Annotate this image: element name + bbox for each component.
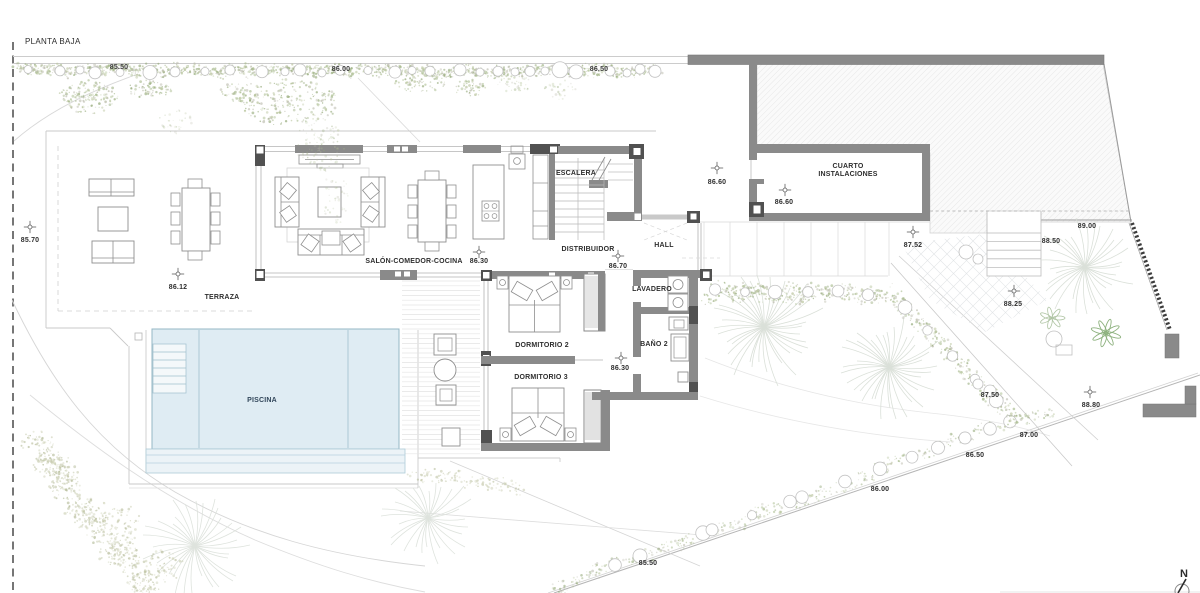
svg-text:88.25: 88.25	[1004, 301, 1023, 308]
svg-text:N: N	[1180, 568, 1188, 580]
svg-text:86.00: 86.00	[871, 486, 890, 493]
svg-text:86.70: 86.70	[609, 263, 628, 270]
svg-text:87.00: 87.00	[1020, 432, 1039, 439]
svg-text:86.00: 86.00	[332, 66, 351, 73]
svg-text:89.00: 89.00	[1078, 223, 1097, 230]
svg-text:87.50: 87.50	[981, 392, 1000, 399]
svg-text:DISTRIBUIDOR: DISTRIBUIDOR	[562, 246, 615, 253]
svg-text:PISCINA: PISCINA	[247, 397, 277, 404]
svg-text:86.12: 86.12	[169, 284, 188, 291]
svg-text:SALÓN-COMEDOR-COCINA: SALÓN-COMEDOR-COCINA	[365, 256, 462, 265]
svg-text:LAVADERO: LAVADERO	[632, 286, 672, 293]
svg-text:PLANTA BAJA: PLANTA BAJA	[25, 37, 81, 46]
svg-text:HALL: HALL	[654, 242, 674, 249]
svg-text:86.60: 86.60	[775, 199, 794, 206]
svg-text:INSTALACIONES: INSTALACIONES	[818, 171, 877, 178]
svg-text:87.52: 87.52	[904, 242, 923, 249]
svg-text:86.30: 86.30	[611, 365, 630, 372]
svg-text:ESCALERA: ESCALERA	[556, 170, 596, 177]
svg-text:CUARTO: CUARTO	[832, 163, 863, 170]
svg-text:88.80: 88.80	[1082, 402, 1101, 409]
svg-text:86.30: 86.30	[470, 258, 489, 265]
svg-text:TERRAZA: TERRAZA	[205, 294, 240, 301]
svg-text:88.50: 88.50	[1042, 238, 1061, 245]
svg-text:85.50: 85.50	[639, 560, 658, 567]
svg-text:86.50: 86.50	[590, 66, 609, 73]
svg-text:BAÑO 2: BAÑO 2	[640, 339, 668, 348]
svg-text:85.70: 85.70	[21, 237, 40, 244]
svg-text:DORMITORIO 3: DORMITORIO 3	[514, 374, 568, 381]
svg-text:DORMITORIO 2: DORMITORIO 2	[515, 342, 569, 349]
svg-text:86.50: 86.50	[966, 452, 985, 459]
svg-text:86.60: 86.60	[708, 179, 727, 186]
svg-text:85.50: 85.50	[110, 64, 129, 71]
